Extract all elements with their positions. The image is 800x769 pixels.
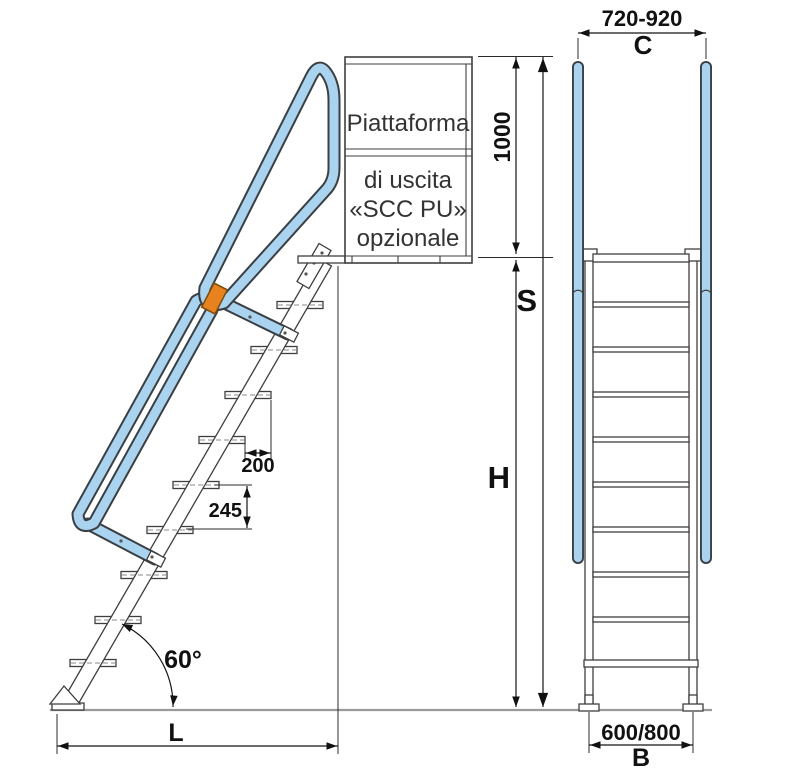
technical-drawing-ladder: Piattaforma di uscita «SCC PU» opzionale — [0, 0, 800, 769]
front-stringer-left — [585, 250, 593, 705]
drawing-canvas: Piattaforma di uscita «SCC PU» opzionale — [0, 0, 800, 769]
dimension-1000-label: 1000 — [489, 111, 515, 162]
dimension-top-width: 720-920 C — [578, 6, 706, 60]
dimension-base-width: 600/800 B — [589, 720, 693, 769]
dimension-H: H — [488, 260, 520, 707]
front-rail-left — [573, 67, 584, 558]
platform-floor-extension — [298, 256, 345, 263]
platform-label-line2: di uscita — [364, 167, 453, 194]
platform-label-line4: opzionale — [357, 225, 460, 252]
dimension-S: S — [516, 57, 548, 707]
dimension-base-width-label: 600/800 — [601, 720, 681, 745]
dimension-L-label: L — [168, 719, 183, 747]
dimension-angle: 60° — [120, 621, 202, 707]
dimension-step-depth: 200 — [241, 449, 274, 477]
dimension-step-rise: 245 — [209, 486, 251, 528]
dimension-angle-label: 60° — [164, 646, 202, 674]
platform-label-line3: «SCC PU» — [349, 196, 466, 223]
front-rail-right — [701, 67, 712, 558]
platform-label-line1: Piattaforma — [347, 110, 470, 137]
front-view-feet — [579, 695, 703, 711]
dimension-B-label: B — [632, 744, 650, 769]
dimension-step-depth-label: 200 — [241, 455, 274, 477]
dimension-S-label: S — [516, 283, 537, 318]
dimension-L: L — [57, 719, 338, 750]
dimension-1000: 1000 — [489, 57, 520, 254]
front-platform-edge — [593, 254, 689, 262]
dimension-H-label: H — [488, 460, 510, 495]
front-view-ladder — [573, 67, 712, 711]
front-view-rungs — [584, 302, 698, 667]
dimension-step-rise-label: 245 — [209, 500, 242, 522]
dimension-C-label: C — [634, 30, 653, 60]
platform-box: Piattaforma di uscita «SCC PU» opzionale — [298, 57, 472, 263]
dimension-top-width-label: 720-920 — [602, 6, 683, 31]
front-stringer-right — [689, 250, 697, 705]
